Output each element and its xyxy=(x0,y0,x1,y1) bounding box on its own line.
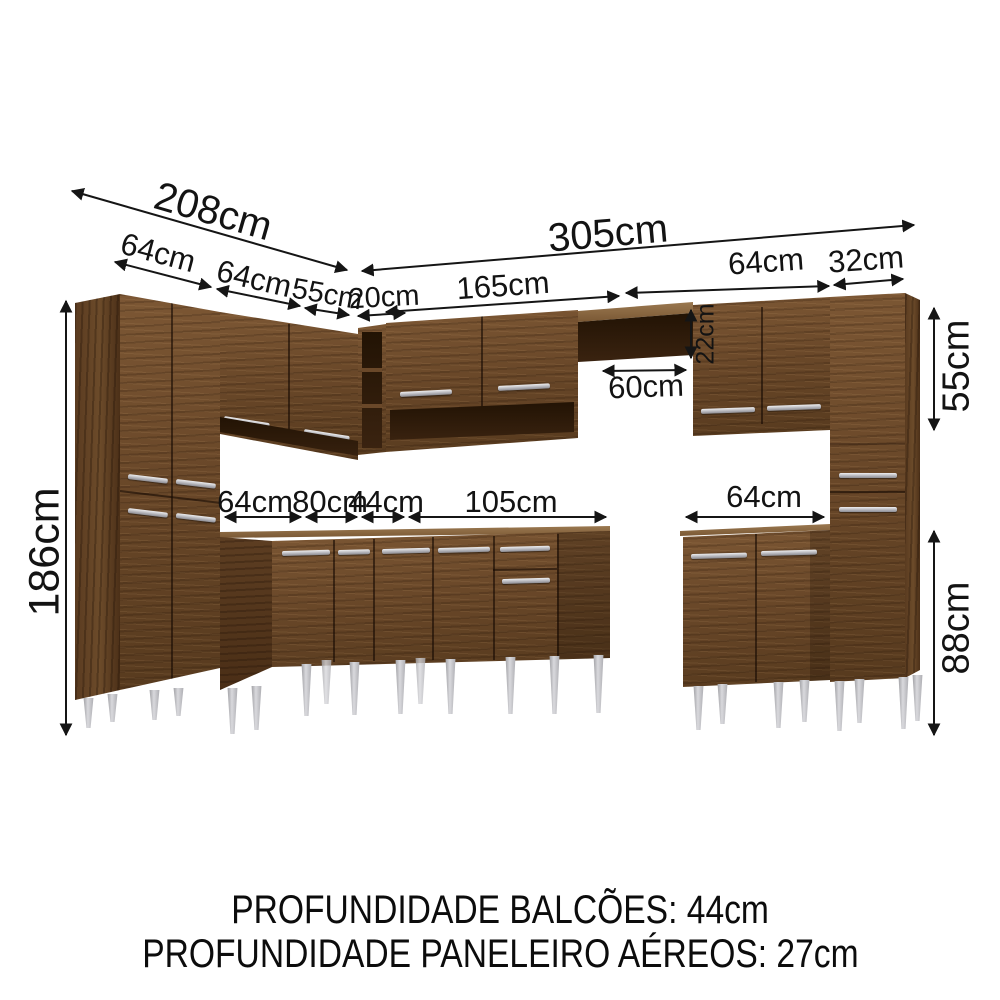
dim-label-186cm: 186cm xyxy=(21,487,70,616)
footer-depth-balcoes: PROFUNDIDADE BALCÕES: 44cm xyxy=(0,888,1000,933)
dim-label-64cm-c: 64cm xyxy=(727,241,805,282)
footer-depth-paneleiro: PROFUNDIDADE PANELEIRO AÉREOS: 27cm xyxy=(0,932,1000,977)
product-dimension-diagram: 208cm 64cm 64cm 55cm 20cm 305cm 165cm 64… xyxy=(0,0,1000,1000)
dim-label-20cm: 20cm xyxy=(348,280,421,317)
dim-label-64cm-right-base: 64cm xyxy=(726,479,802,515)
dim-label-64cm-base: 64cm xyxy=(217,484,293,520)
dim-label-88cm: 88cm xyxy=(936,582,979,675)
dim-label-22cm: 22cm xyxy=(692,303,721,364)
dim-label-55cm-r: 55cm xyxy=(936,320,979,413)
dim-label-32cm: 32cm xyxy=(827,239,905,280)
dim-label-60cm: 60cm xyxy=(607,368,684,407)
dim-label-44cm: 44cm xyxy=(348,484,424,520)
footer-depth-balcoes-text: PROFUNDIDADE BALCÕES: 44cm xyxy=(231,888,769,933)
dim-label-105cm: 105cm xyxy=(464,484,557,520)
dim-label-165cm: 165cm xyxy=(455,265,550,307)
footer-depth-paneleiro-text: PROFUNDIDADE PANELEIRO AÉREOS: 27cm xyxy=(142,932,858,977)
